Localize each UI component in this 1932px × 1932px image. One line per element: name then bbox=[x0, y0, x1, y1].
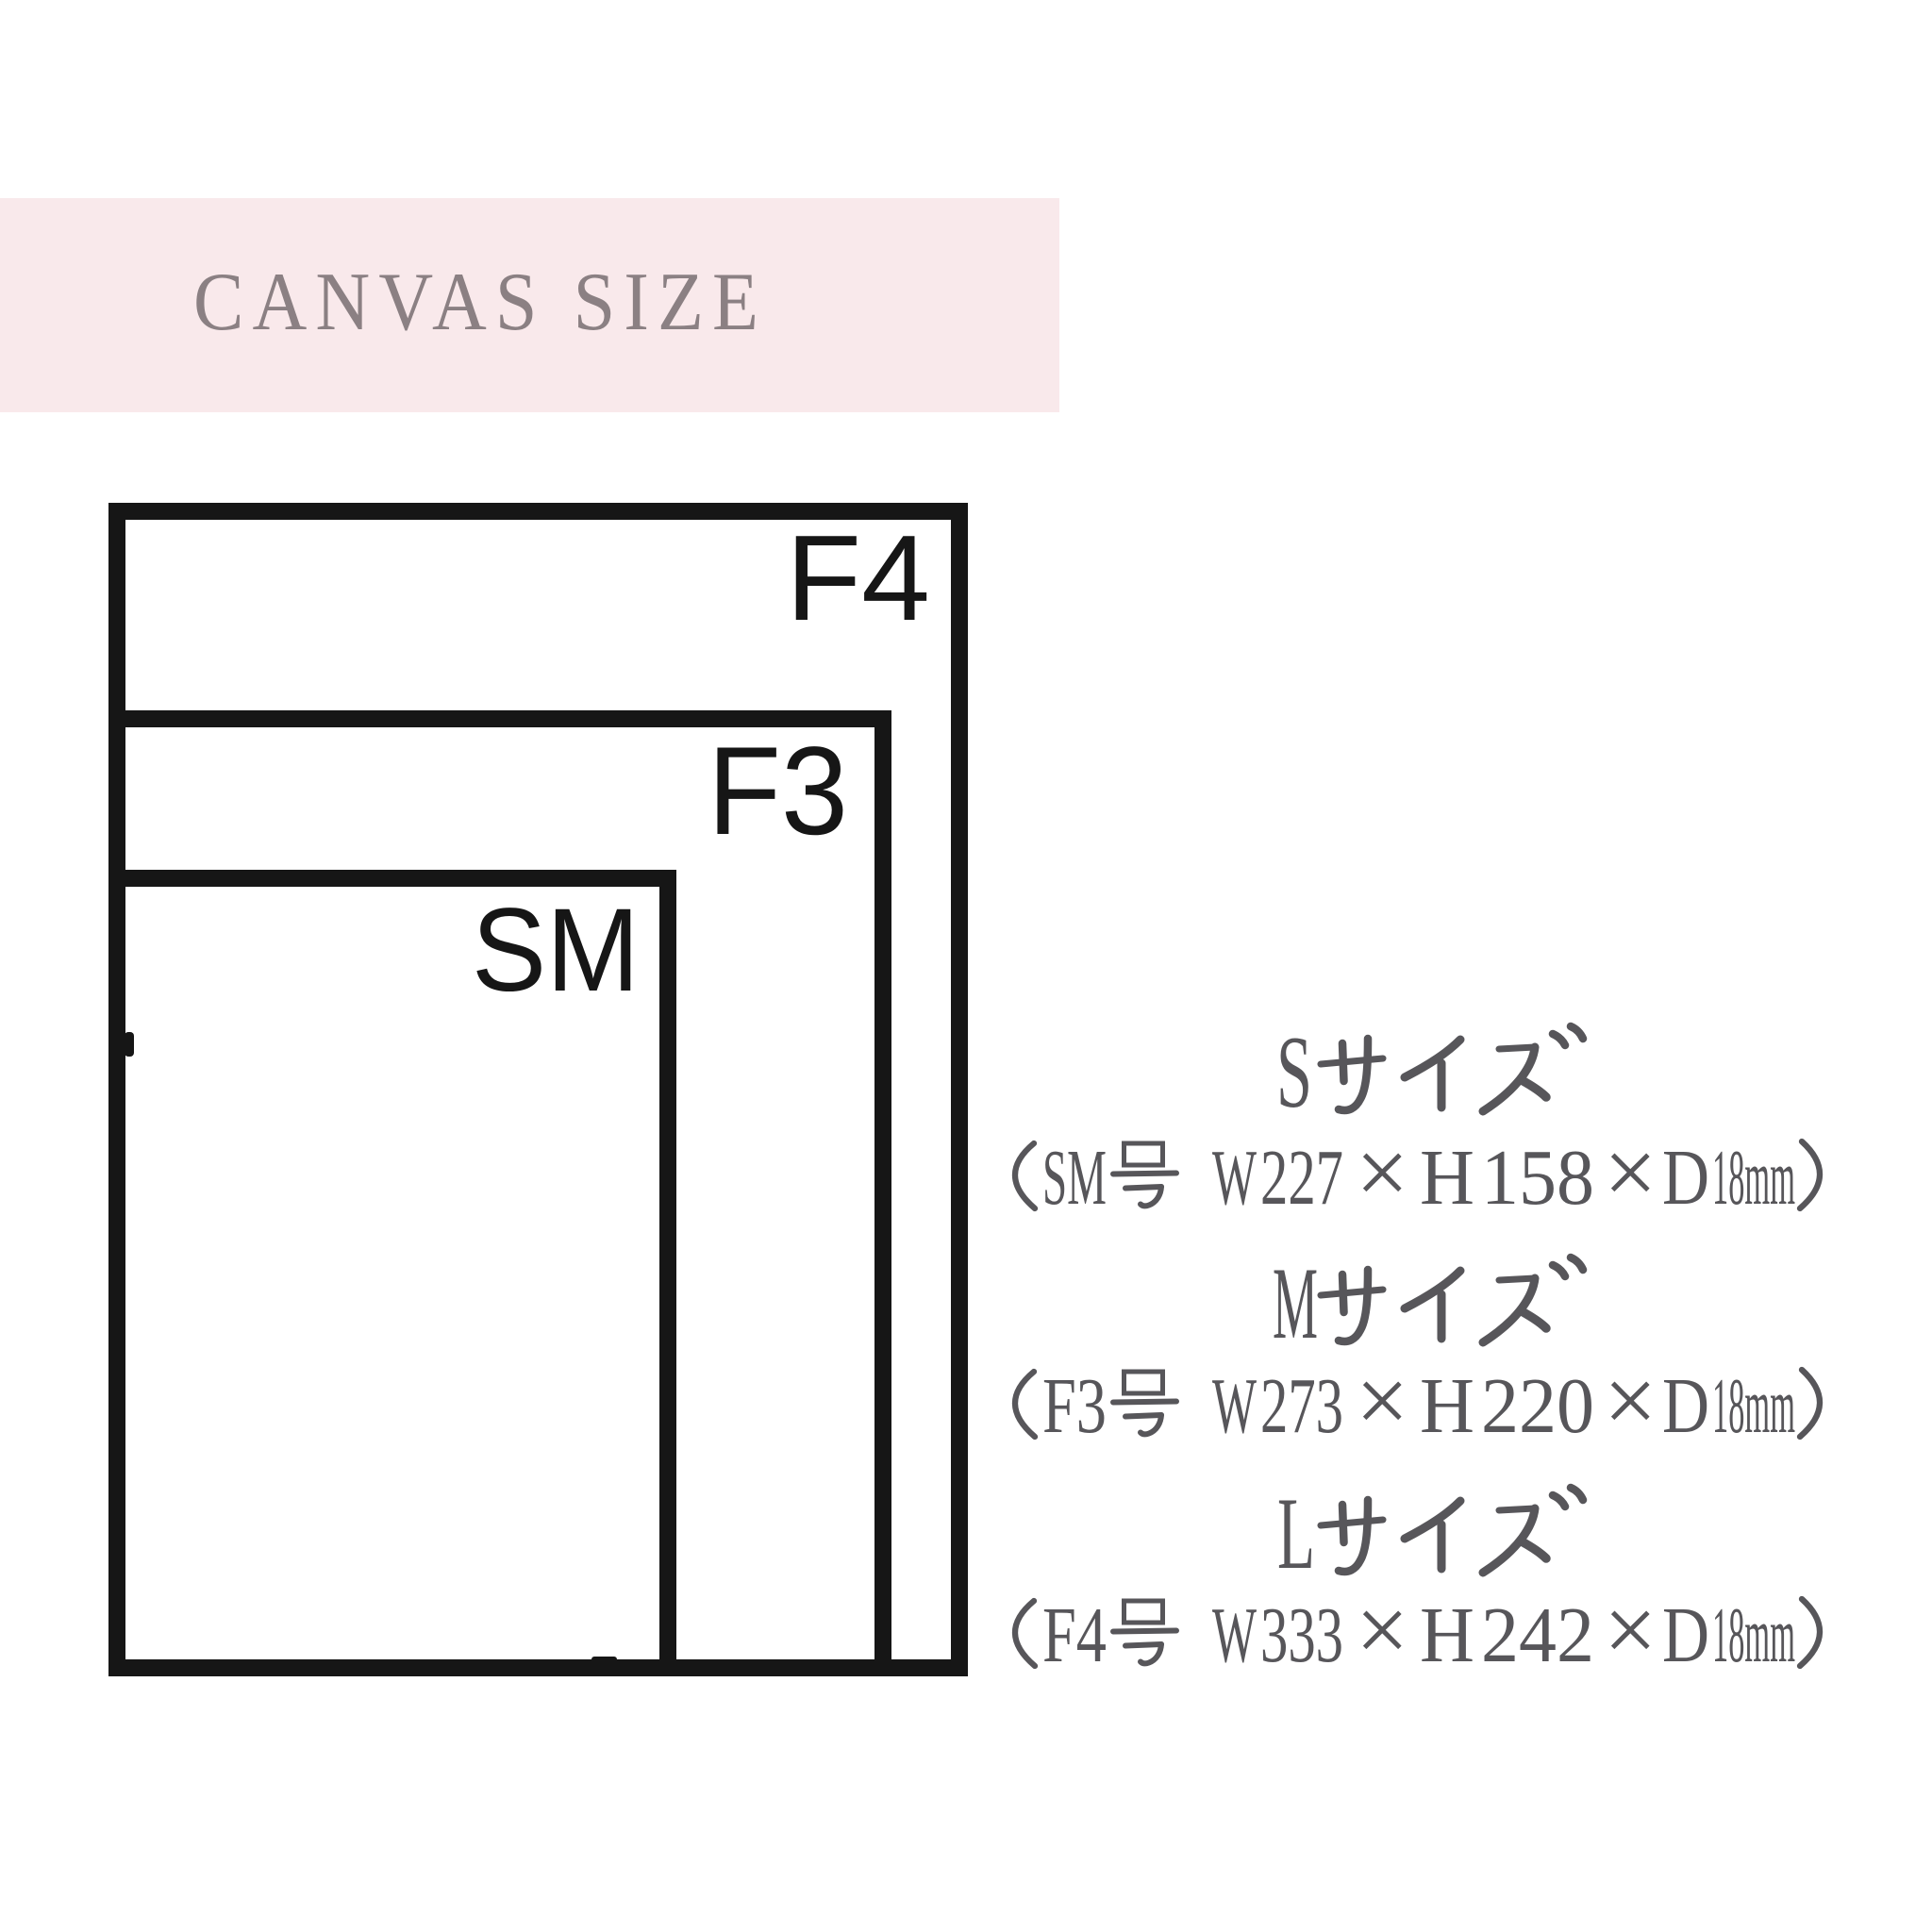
svg-text:18mm: 18mm bbox=[1712, 1591, 1795, 1679]
svg-text:273: 273 bbox=[1260, 1362, 1343, 1450]
svg-text:333: 333 bbox=[1260, 1591, 1343, 1679]
svg-text:×: × bbox=[1604, 1120, 1657, 1224]
svg-text:18mm: 18mm bbox=[1712, 1134, 1795, 1222]
svg-text:L: L bbox=[1277, 1476, 1315, 1591]
svg-text:F4: F4 bbox=[786, 510, 930, 646]
svg-text:SM: SM bbox=[472, 885, 640, 1016]
svg-text:220: 220 bbox=[1481, 1362, 1594, 1450]
svg-text:×: × bbox=[1604, 1348, 1657, 1453]
svg-text:×: × bbox=[1356, 1577, 1408, 1682]
svg-text:F3: F3 bbox=[708, 722, 848, 861]
svg-text:D: D bbox=[1662, 1362, 1709, 1450]
svg-text:S: S bbox=[1276, 1015, 1312, 1129]
svg-text:227: 227 bbox=[1260, 1134, 1343, 1222]
svg-text:H: H bbox=[1420, 1362, 1474, 1450]
svg-text:×: × bbox=[1356, 1120, 1408, 1224]
svg-text:H: H bbox=[1420, 1591, 1474, 1679]
svg-text:18mm: 18mm bbox=[1712, 1362, 1795, 1450]
svg-text:242: 242 bbox=[1481, 1591, 1594, 1679]
svg-text:W: W bbox=[1212, 1591, 1257, 1679]
svg-text:SM: SM bbox=[1042, 1134, 1107, 1222]
svg-text:158: 158 bbox=[1481, 1134, 1594, 1222]
svg-text:W: W bbox=[1212, 1362, 1257, 1450]
svg-text:×: × bbox=[1356, 1348, 1408, 1453]
svg-text:F3: F3 bbox=[1042, 1362, 1107, 1450]
svg-text:D: D bbox=[1662, 1134, 1709, 1222]
svg-text:D: D bbox=[1662, 1591, 1709, 1679]
svg-text:H: H bbox=[1420, 1134, 1474, 1222]
svg-text:CANVAS SIZE: CANVAS SIZE bbox=[193, 257, 767, 348]
svg-text:×: × bbox=[1604, 1577, 1657, 1682]
svg-text:F4: F4 bbox=[1042, 1591, 1107, 1679]
svg-text:M: M bbox=[1273, 1246, 1318, 1360]
svg-text:W: W bbox=[1212, 1134, 1257, 1222]
